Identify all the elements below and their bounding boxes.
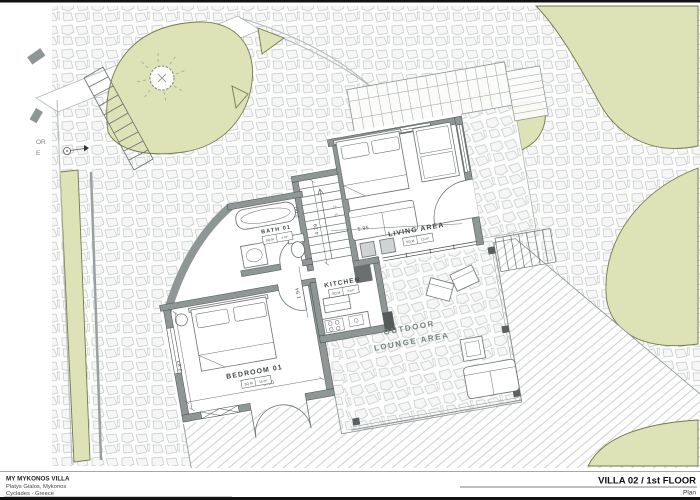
sheet-title: VILLA 02 / 1st FLOOR <box>598 476 696 487</box>
pouf <box>380 238 396 254</box>
edge-label-2: E <box>36 150 41 157</box>
floor-plan-drawing: 15 14 <box>0 0 700 500</box>
floor-plan-sheet: 15 14 <box>0 0 700 500</box>
project-address-2: Cyclades - Greece <box>6 491 54 497</box>
top-border <box>0 0 700 3</box>
edge-label-1: OR <box>36 139 46 146</box>
sheet-subtitle: Plan <box>683 490 696 497</box>
project-name: MY MYKONOS VILLA <box>6 476 70 483</box>
pouf <box>360 241 376 257</box>
project-address-1: Platys Gialos, Mykonos <box>6 484 66 490</box>
